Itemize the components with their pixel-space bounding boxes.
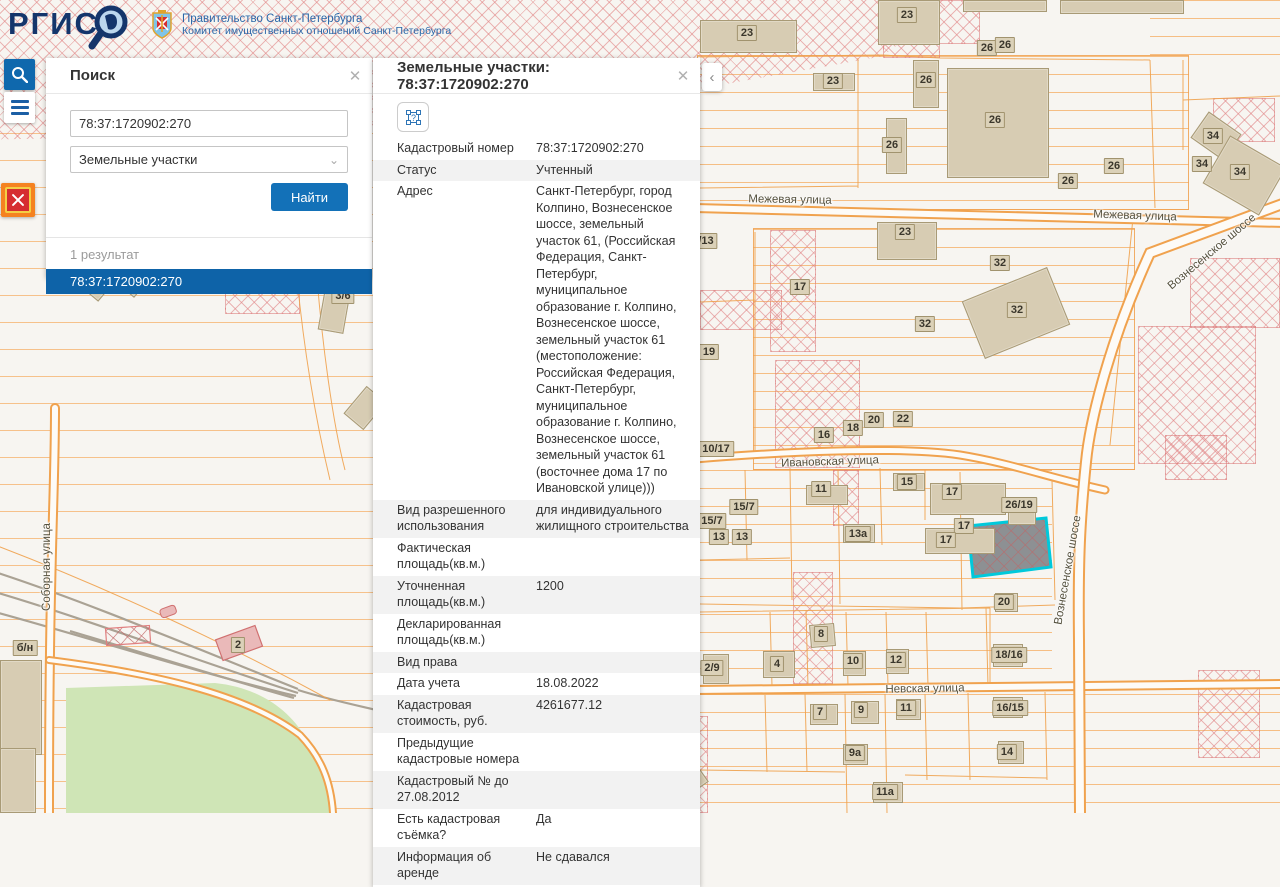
parcel-number-label: 13 <box>732 529 752 545</box>
parcel-number-label: 23 <box>895 224 915 240</box>
parcel-number-label: 26 <box>1104 158 1124 174</box>
parcel-number-label: 17 <box>936 532 956 548</box>
parcel-number-label: 4 <box>770 656 784 672</box>
show-geometry-button[interactable]: ? <box>397 102 429 132</box>
attribute-row: Кадастровая стоимость, руб.4261677.12 <box>373 695 700 733</box>
parcel-number-label: 17 <box>942 484 962 500</box>
search-results: 78:37:1720902:270 <box>46 269 372 294</box>
parcel-number-label: 26 <box>995 37 1015 53</box>
search-tool-button[interactable] <box>4 59 35 90</box>
attribute-row: Информация об арендеНе сдавался <box>373 847 700 885</box>
parcel-number-label: 13а <box>845 526 871 542</box>
attribute-row: СтатусУчтенный <box>373 160 700 182</box>
street-name-label: Ивановская улица <box>781 454 879 469</box>
search-close-button[interactable]: ✕ <box>338 67 372 85</box>
rgis-logo[interactable]: РГИС <box>8 2 137 54</box>
parcel-number-label: 23 <box>737 25 757 41</box>
find-button[interactable]: Найти <box>271 183 348 211</box>
parcel-number-label: 2 <box>231 637 245 653</box>
search-input[interactable] <box>70 110 348 137</box>
parcel-number-label: 19 <box>699 344 719 360</box>
street-name-label: Вознесенское шоссе <box>1052 514 1083 625</box>
chevron-down-icon: ⌄ <box>329 153 339 167</box>
parcel-number-label: 15/7 <box>729 499 758 515</box>
layer-select-value: Земельные участки <box>79 152 197 167</box>
parcel-number-label: 34 <box>1203 128 1223 144</box>
parcel-number-label: 16 <box>814 427 834 443</box>
parcel-number-label: 11а <box>872 784 898 800</box>
hamburger-icon <box>11 100 29 103</box>
spb-emblem-icon <box>5 187 31 213</box>
details-panel-title: Земельные участки: 78:37:1720902:270 <box>373 59 666 93</box>
parcel-number-label: 26 <box>1058 173 1078 189</box>
parcel-number-label: 26/19 <box>1001 497 1037 513</box>
parcel-number-label: 13 <box>709 529 729 545</box>
magnifier-logo-icon <box>85 2 137 54</box>
street-name-label: Межевая улица <box>1093 209 1177 224</box>
svg-text:?: ? <box>410 113 415 123</box>
details-close-button[interactable]: ✕ <box>666 67 700 85</box>
parcel-number-label: 10/17 <box>698 441 734 457</box>
attribute-row: Кадастровый номер78:37:1720902:270 <box>373 138 700 160</box>
parcel-number-label: 32 <box>990 255 1010 271</box>
parcel-number-label: 32 <box>915 316 935 332</box>
parcel-number-label: 2/9 <box>700 660 723 676</box>
results-count: 1 результат <box>46 238 372 269</box>
parcel-number-label: 26 <box>916 72 936 88</box>
parcel-number-label: 11 <box>896 700 916 716</box>
street-name-label: Невская улица <box>885 682 964 695</box>
parcel-number-label: 34 <box>1192 156 1212 172</box>
street-name-label: Вознесенское шоссе <box>1166 212 1259 292</box>
parcel-number-label: 11 <box>811 481 831 497</box>
parcel-number-label: 34 <box>1230 164 1250 180</box>
gov-line1: Правительство Санкт-Петербурга <box>182 13 451 25</box>
attribute-row: Вид права <box>373 652 700 674</box>
attribute-row: Декларированная площадь(кв.м.) <box>373 614 700 652</box>
parcel-number-label: 26 <box>882 137 902 153</box>
search-result-item[interactable]: 78:37:1720902:270 <box>46 269 372 294</box>
spb-coat-of-arms-icon <box>150 10 174 40</box>
parcel-number-label: 17 <box>790 279 810 295</box>
menu-button[interactable] <box>4 92 35 123</box>
parcel-number-label: 8 <box>814 626 828 642</box>
attributes-table: Кадастровый номер78:37:1720902:270Статус… <box>373 138 700 885</box>
search-panel-title: Поиск <box>46 67 338 84</box>
attribute-row: Есть кадастровая съёмка?Да <box>373 809 700 847</box>
parcel-number-label: 9 <box>854 702 868 718</box>
parcel-number-label: 20 <box>994 594 1014 610</box>
collapse-panel-button[interactable]: ‹ <box>702 63 722 91</box>
gov-line2: Комитет имущественных отношений Санкт-Пе… <box>182 25 451 37</box>
search-icon <box>11 66 28 83</box>
street-name-label: Межевая улица <box>748 193 832 206</box>
parcel-number-label: 18/16 <box>991 647 1027 663</box>
attribute-row: Кадастровый № до 27.08.2012 <box>373 771 700 809</box>
search-panel: Поиск ✕ Земельные участки ⌄ Найти 1 резу… <box>46 58 372 278</box>
parcel-number-label: 12 <box>886 652 906 668</box>
parcel-details-panel: Земельные участки: 78:37:1720902:270 ✕ ?… <box>373 58 700 887</box>
parcel-number-label: 26 <box>985 112 1005 128</box>
parcel-number-label: 7 <box>813 704 827 720</box>
parcel-number-label: 23 <box>823 73 843 89</box>
geometry-question-icon: ? <box>406 110 421 125</box>
parcel-number-label: 23 <box>897 7 917 23</box>
parcel-number-label: 22 <box>893 411 913 427</box>
parcel-number-label: 10 <box>843 653 863 669</box>
parcel-number-label: 15 <box>897 474 917 490</box>
street-name-label: Соборная улица <box>41 523 53 611</box>
parcel-number-label: 9а <box>845 745 865 761</box>
parcel-number-label: 16/15 <box>992 700 1028 716</box>
parcel-number-label: 20 <box>864 412 884 428</box>
parcel-number-label: 17 <box>954 518 974 534</box>
attribute-row: АдресСанкт-Петербург, город Колпино, Воз… <box>373 181 700 500</box>
parcel-number-label: б/н <box>13 640 38 656</box>
attribute-row: Вид разрешенного использованиядля индиви… <box>373 500 700 538</box>
parcel-number-label: 15/7 <box>697 513 726 529</box>
spb-emblem-button[interactable] <box>1 183 35 217</box>
layer-select[interactable]: Земельные участки ⌄ <box>70 146 348 173</box>
attribute-row: Фактическая площадь(кв.м.) <box>373 538 700 576</box>
attribute-row: Предыдущие кадастровые номера <box>373 733 700 771</box>
parcel-number-label: 14 <box>997 744 1017 760</box>
attribute-row: Дата учета18.08.2022 <box>373 673 700 695</box>
parcel-number-label: 18 <box>843 420 863 436</box>
parcel-number-label: 32 <box>1007 302 1027 318</box>
government-header: Правительство Санкт-Петербурга Комитет и… <box>150 10 451 40</box>
attribute-row: Уточненная площадь(кв.м.)1200 <box>373 576 700 614</box>
